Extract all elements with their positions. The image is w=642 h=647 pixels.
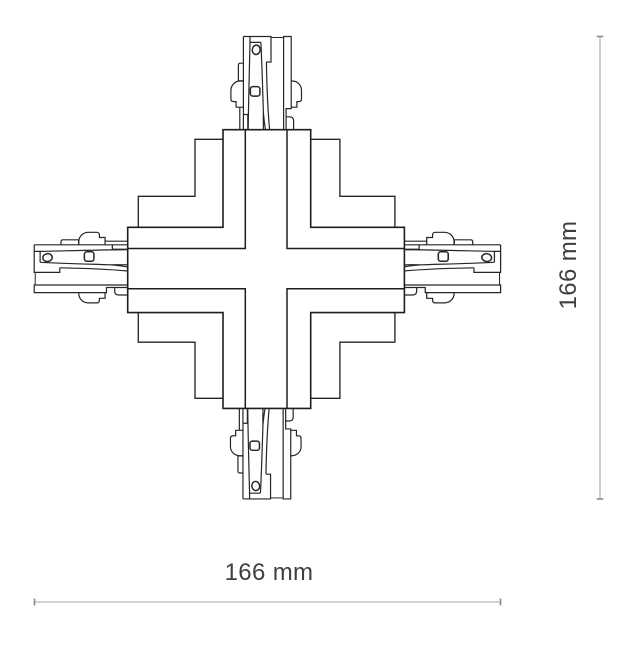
svg-text:166 mm: 166 mm — [555, 221, 582, 310]
svg-text:166 mm: 166 mm — [225, 559, 314, 586]
